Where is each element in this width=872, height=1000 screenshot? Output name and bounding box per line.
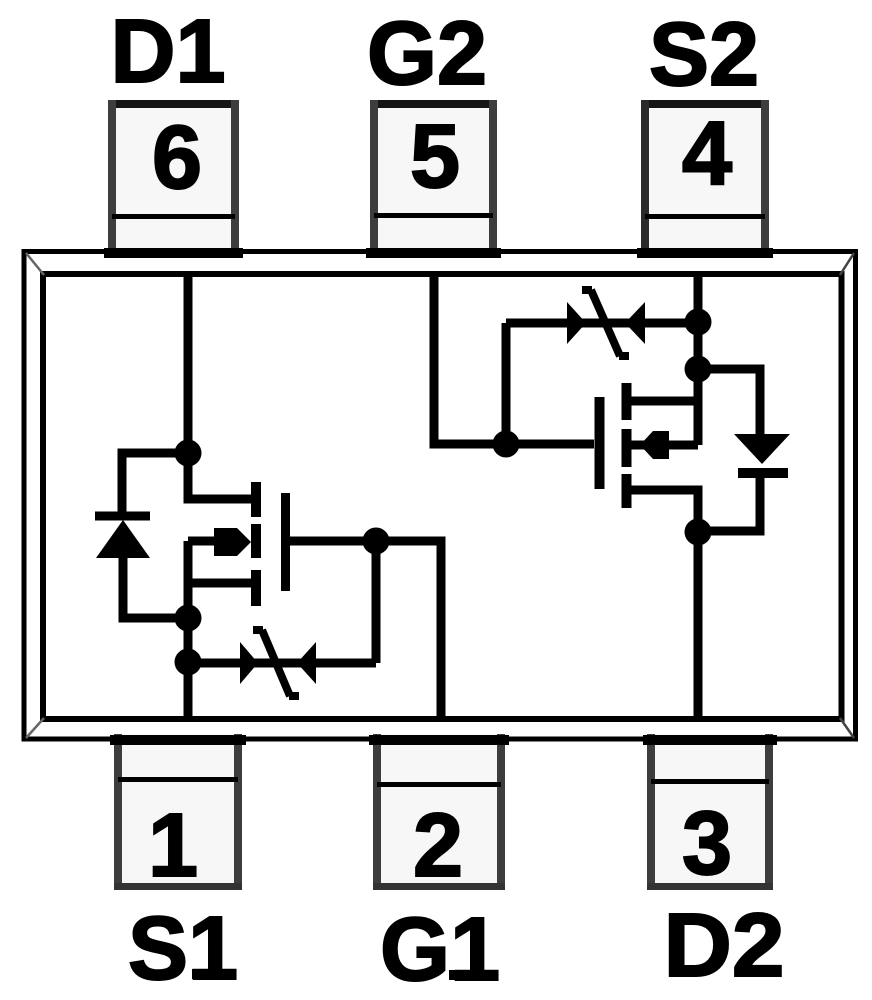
svg-text:1: 1 xyxy=(148,796,198,896)
svg-text:6: 6 xyxy=(152,108,202,208)
svg-text:D2: D2 xyxy=(664,896,785,996)
svg-text:G1: G1 xyxy=(380,900,500,1000)
svg-text:D1: D1 xyxy=(110,2,225,102)
svg-text:4: 4 xyxy=(682,104,732,204)
svg-text:2: 2 xyxy=(413,796,463,896)
svg-text:5: 5 xyxy=(410,107,460,207)
svg-text:S1: S1 xyxy=(128,899,238,999)
svg-text:S2: S2 xyxy=(649,5,759,105)
svg-text:G2: G2 xyxy=(367,4,487,104)
svg-text:3: 3 xyxy=(682,794,732,894)
